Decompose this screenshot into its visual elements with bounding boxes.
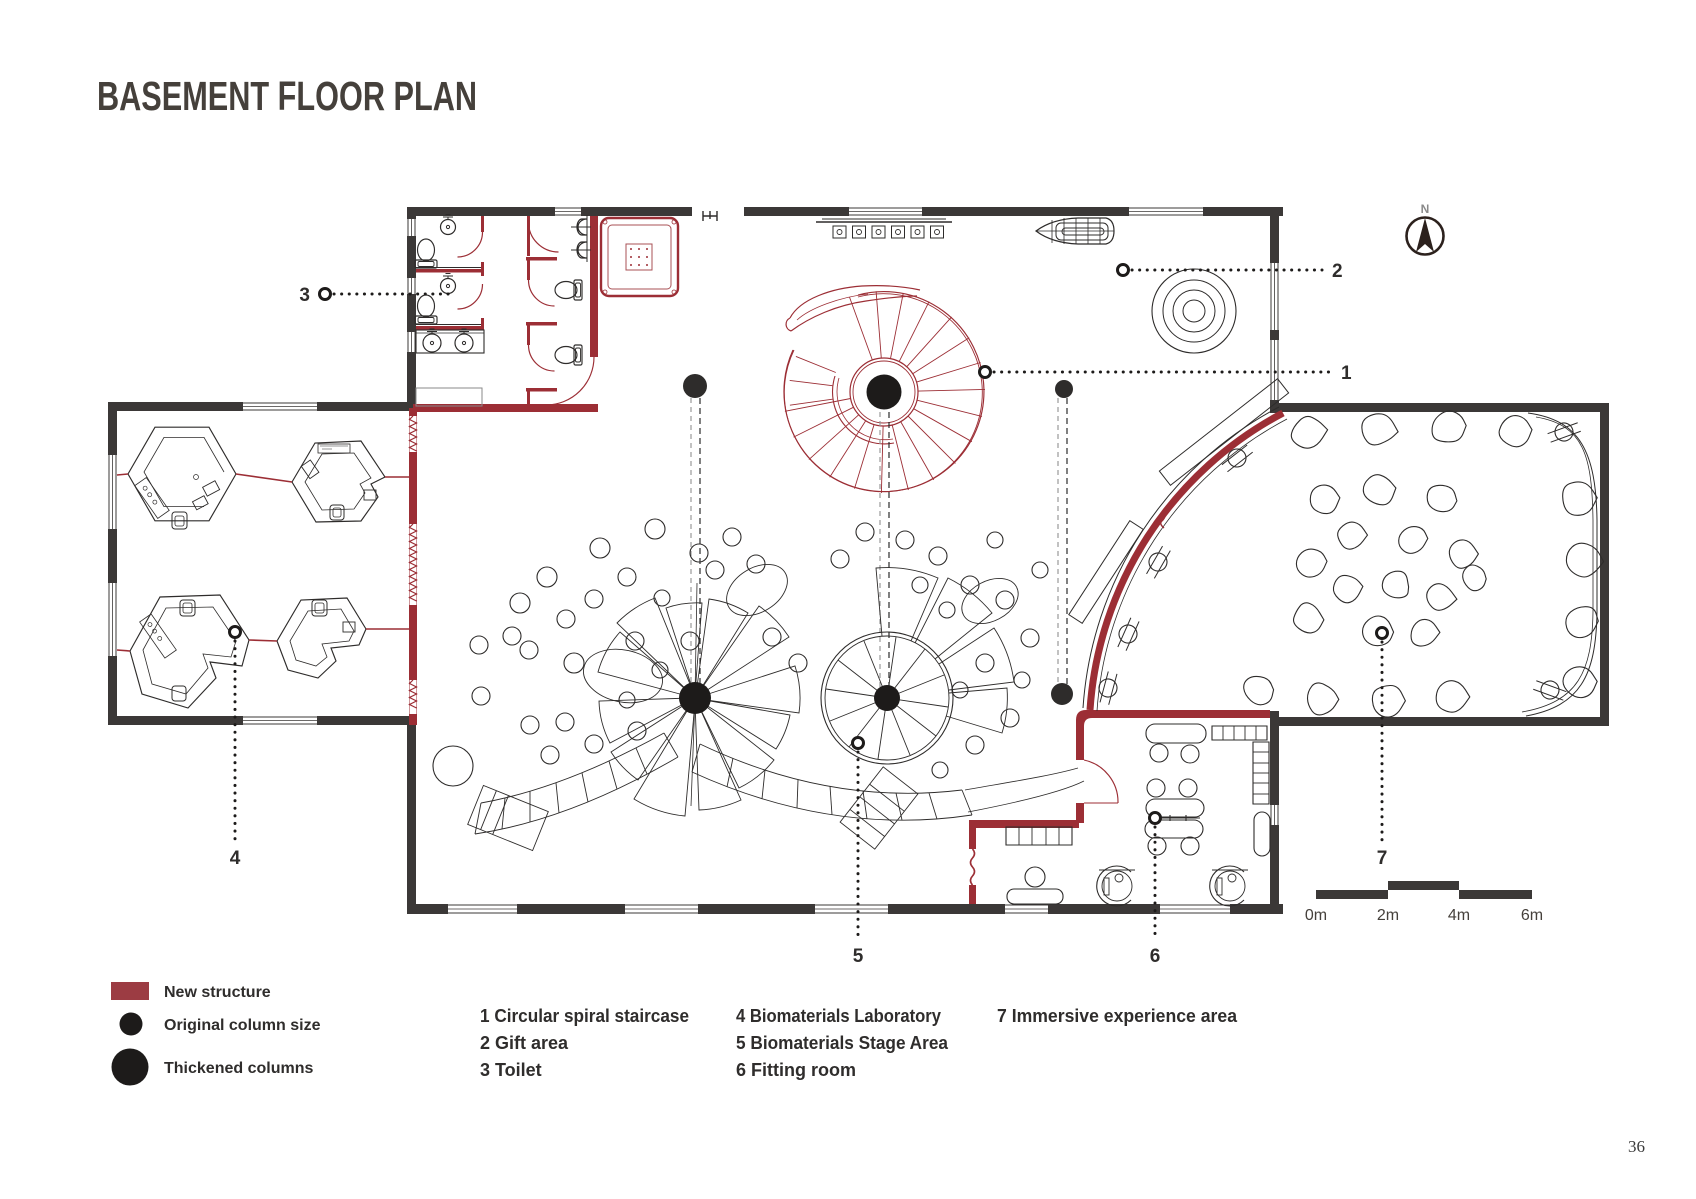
svg-text:2: 2 — [1332, 261, 1343, 282]
svg-text:Thickened columns: Thickened columns — [164, 1060, 313, 1077]
svg-text:6: 6 — [1150, 946, 1161, 967]
svg-text:New structure: New structure — [164, 984, 271, 1001]
svg-text:4m: 4m — [1448, 907, 1470, 924]
svg-text:3 Toilet: 3 Toilet — [480, 1060, 542, 1080]
svg-text:2 Gift area: 2 Gift area — [480, 1033, 569, 1053]
svg-text:7 Immersive experience area: 7 Immersive experience area — [997, 1006, 1238, 1026]
svg-text:3: 3 — [299, 285, 310, 306]
svg-text:BASEMENT FLOOR PLAN: BASEMENT FLOOR PLAN — [97, 73, 477, 119]
svg-text:2m: 2m — [1377, 907, 1399, 924]
svg-text:1 Circular spiral staircase: 1 Circular spiral staircase — [480, 1006, 689, 1026]
svg-text:6m: 6m — [1521, 907, 1543, 924]
svg-text:1: 1 — [1341, 363, 1352, 384]
svg-text:4 Biomaterials Laboratory: 4 Biomaterials Laboratory — [736, 1006, 941, 1026]
svg-text:Original column size: Original column size — [164, 1017, 321, 1034]
svg-text:7: 7 — [1377, 848, 1388, 869]
svg-text:0m: 0m — [1305, 907, 1327, 924]
svg-text:6 Fitting room: 6 Fitting room — [736, 1060, 856, 1080]
svg-text:5: 5 — [853, 946, 864, 967]
svg-text:4: 4 — [230, 848, 241, 869]
svg-text:N: N — [1421, 202, 1430, 216]
svg-text:36: 36 — [1628, 1137, 1645, 1156]
svg-text:5 Biomaterials Stage Area: 5 Biomaterials Stage Area — [736, 1033, 949, 1053]
